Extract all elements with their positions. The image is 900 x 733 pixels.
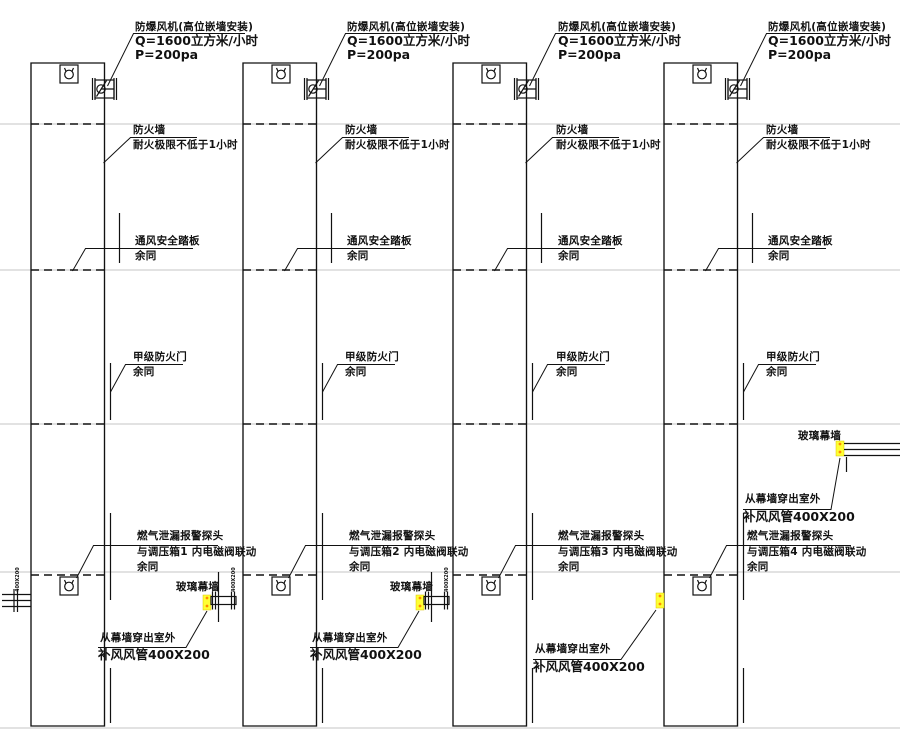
vent-note-line1: 通风安全踏板 — [347, 235, 412, 247]
fan-note-line2: Q=1600立方米/小时 — [768, 34, 891, 48]
curtain-wall-label: 玻璃幕墙 — [390, 581, 433, 593]
fan-note-line3: P=200pa — [558, 48, 621, 62]
gas-detector-icon — [482, 65, 500, 83]
gas-note-line2: 与调压箱3 内电磁阀联动 — [558, 546, 678, 558]
leader-lines — [495, 34, 668, 579]
shaft-column-2 — [243, 34, 457, 727]
firewall-note-line1: 防火墙 — [133, 124, 165, 136]
fan-note-line1: 防爆风机(高位嵌墙安装) — [558, 21, 676, 33]
out-duct-note-line1: 从幕墙穿出室外 — [100, 632, 176, 644]
shaft-column-1 — [31, 34, 245, 727]
out-duct-note-line2: 补风风管400X200 — [533, 660, 645, 674]
door-note-line1: 甲级防火门 — [345, 351, 399, 363]
out-duct-note-line1: 从幕墙穿出室外 — [535, 643, 611, 655]
vent-note-line1: 通风安全踏板 — [558, 235, 623, 247]
door-note-line1: 甲级防火门 — [556, 351, 610, 363]
vent-note-line2: 余同 — [768, 250, 790, 262]
gas-detector-icon — [60, 65, 78, 83]
gas-detector-icon — [272, 65, 290, 83]
vent-note-line2: 余同 — [347, 250, 369, 262]
fan-note-line2: Q=1600立方米/小时 — [347, 34, 470, 48]
gas-note-line1: 燃气泄漏报警探头 — [747, 530, 833, 542]
fan-note-line2: Q=1600立方米/小时 — [135, 34, 258, 48]
duct-size-label: 400X200 — [445, 567, 450, 592]
duct-size-label: 400X200 — [16, 567, 21, 592]
gas-note-line2: 与调压箱1 内电磁阀联动 — [137, 546, 257, 558]
gas-note-line3: 余同 — [747, 561, 769, 573]
firewall-note-line2: 耐火极限不低于1小时 — [766, 139, 871, 151]
vent-note-line1: 通风安全踏板 — [768, 235, 833, 247]
duct-stub-left — [2, 589, 31, 612]
out-duct-note-line2: 补风风管400X200 — [743, 510, 855, 524]
shaft-column-3 — [453, 34, 667, 727]
door-note-line2: 余同 — [345, 366, 367, 378]
door-note-line2: 余同 — [556, 366, 578, 378]
out-duct-note-line2: 补风风管400X200 — [98, 648, 210, 662]
door-note-line1: 甲级防火门 — [766, 351, 820, 363]
gas-detector-icon — [272, 577, 290, 595]
gas-note-line2: 与调压箱4 内电磁阀联动 — [747, 546, 867, 558]
firewall-note-line1: 防火墙 — [766, 124, 798, 136]
duct-size-label: 400X200 — [232, 567, 237, 592]
firewall-note-line2: 耐火极限不低于1小时 — [556, 139, 661, 151]
gas-note-line1: 燃气泄漏报警探头 — [137, 530, 223, 542]
fan-note-line3: P=200pa — [768, 48, 831, 62]
gas-detector-icon — [693, 577, 711, 595]
vent-note-line1: 通风安全踏板 — [135, 235, 200, 247]
firewall-note-line1: 防火墙 — [556, 124, 588, 136]
wall-tick-lines — [744, 213, 753, 723]
leader-lines — [285, 34, 458, 579]
gas-detector-icon — [482, 577, 500, 595]
fan-note-line3: P=200pa — [135, 48, 198, 62]
door-note-line2: 余同 — [133, 366, 155, 378]
gas-note-line3: 余同 — [349, 561, 371, 573]
fan-note-line2: Q=1600立方米/小时 — [558, 34, 681, 48]
fan-note-line1: 防爆风机(高位嵌墙安装) — [347, 21, 465, 33]
gas-note-line3: 余同 — [558, 561, 580, 573]
gas-note-line3: 余同 — [137, 561, 159, 573]
fan-note-line3: P=200pa — [347, 48, 410, 62]
door-note-line1: 甲级防火门 — [133, 351, 187, 363]
fan-note-line1: 防爆风机(高位嵌墙安装) — [135, 21, 253, 33]
gas-note-line1: 燃气泄漏报警探头 — [349, 530, 435, 542]
leader-lines — [73, 34, 246, 579]
out-duct-note-line1: 从幕墙穿出室外 — [745, 493, 821, 505]
gas-detector-icon — [693, 65, 711, 83]
door-note-line2: 余同 — [766, 366, 788, 378]
firewall-note-line1: 防火墙 — [345, 124, 377, 136]
curtain-wall-label: 玻璃幕墙 — [176, 581, 219, 593]
curtain-wall-label: 玻璃幕墙 — [798, 430, 841, 442]
gas-note-line1: 燃气泄漏报警探头 — [558, 530, 644, 542]
firewall-note-line2: 耐火极限不低于1小时 — [345, 139, 450, 151]
gas-note-line2: 与调压箱2 内电磁阀联动 — [349, 546, 469, 558]
cad-drawing-canvas: 防爆风机(高位嵌墙安装) Q=1600立方米/小时 P=200pa 防火墙 耐火… — [0, 0, 900, 733]
out-duct-note-line1: 从幕墙穿出室外 — [312, 632, 388, 644]
gas-detector-icon — [60, 577, 78, 595]
fan-note-line1: 防爆风机(高位嵌墙安装) — [768, 21, 886, 33]
shaft-column-4 — [664, 34, 878, 727]
vent-note-line2: 余同 — [135, 250, 157, 262]
vent-note-line2: 余同 — [558, 250, 580, 262]
out-duct-note-line2: 补风风管400X200 — [310, 648, 422, 662]
firewall-note-line2: 耐火极限不低于1小时 — [133, 139, 238, 151]
